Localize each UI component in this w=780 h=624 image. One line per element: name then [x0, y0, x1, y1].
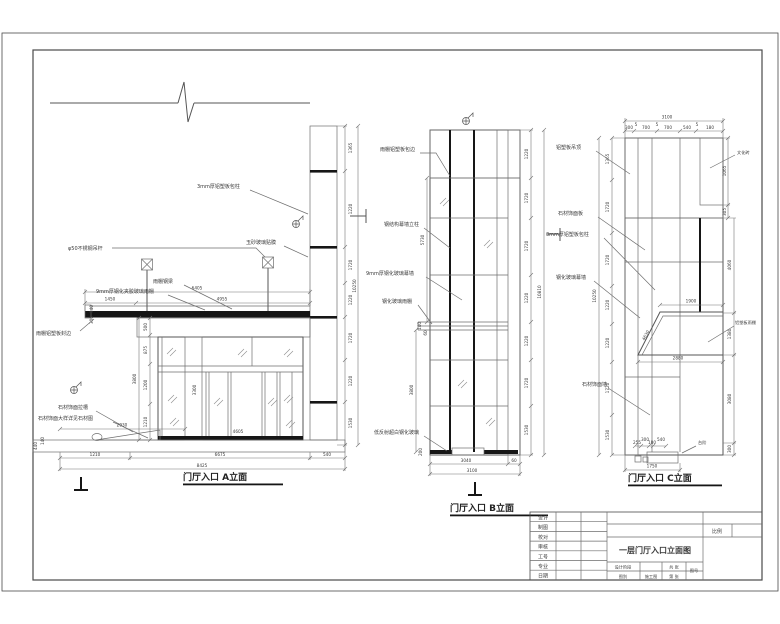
dim-col-6: 1220 — [348, 375, 353, 386]
tb-drawing-title: 一层门厅入口立面图 — [619, 545, 691, 555]
dim-right-total: 10810 — [537, 285, 542, 299]
tb-stage-value: 施工图 — [645, 573, 658, 580]
tb-row-3: 校对 — [538, 534, 548, 541]
dim-bottom-1: 1210 — [90, 452, 101, 457]
dim-c-seg3: 700 — [642, 125, 650, 130]
dim-bottom-total: 8425 — [197, 463, 208, 468]
label-stone-panel: 石材饰面板 — [558, 210, 583, 217]
dim-c-seg1: 300 — [625, 125, 633, 130]
dim-store-2: 875 — [143, 346, 148, 354]
tb-row-5: 工号 — [538, 554, 548, 560]
dim-below-canopy: 2880 — [673, 356, 684, 361]
dim-canopy-slope: 4630 — [641, 329, 651, 341]
labels-b: 雨棚铝塑板包边 钢结构幕墙立柱 9mm厚钢化玻璃幕墙 钢化玻璃雨棚 低反射超白钢… — [366, 146, 462, 451]
dim-ramp: 2930 — [117, 423, 128, 428]
label-canopy-b: 钢化玻璃雨棚 — [382, 298, 412, 305]
section-marker-a — [74, 477, 88, 490]
dim-bottom-2: 6675 — [215, 452, 226, 457]
dim-mullion: 3300 — [192, 384, 197, 395]
dim-c-seg6: 540 — [683, 125, 691, 130]
stone-column — [310, 126, 337, 440]
dim-top-seg2: 4955 — [217, 297, 228, 302]
title-underline-a — [183, 484, 283, 486]
dim-col-4: 1220 — [348, 294, 353, 305]
dim-left-4: 1220 — [605, 299, 610, 310]
dim-bottom-3: 540 — [323, 452, 331, 457]
level-symbol-a2 — [293, 216, 304, 228]
labels-c: 铝塑板吊顶 石材饰面板 3mm厚铝塑板包柱 钢化玻璃幕墙 石材饰面墙 文化砖 铝… — [546, 144, 756, 453]
label-stone-groove: 石材饰面拉槽 — [58, 404, 88, 411]
section-marker-b — [468, 482, 482, 495]
dim-step-3: 180 — [648, 440, 656, 445]
dim-c-seg2: 5 — [635, 122, 638, 127]
dim-brick-h: 1065 — [722, 165, 727, 176]
tb-row-7: 日期 — [538, 574, 548, 580]
dim-c-seg5: 700 — [664, 125, 672, 130]
dim-bottom-b-total: 3100 — [467, 468, 478, 473]
dim-col-3: 1720 — [348, 259, 353, 270]
label-mullion-b: 钢结构幕墙立柱 — [384, 221, 419, 228]
tb-row-6: 专业 — [538, 563, 548, 570]
cad-drawing-page: 1365 1220 1720 1220 1720 1220 1530 10250… — [0, 0, 780, 624]
dim-chain-left-c: 1365 1720 1720 1220 1220 1720 1530 10250 — [592, 136, 625, 457]
cad-canvas: 1365 1220 1720 1220 1720 1220 1530 10250… — [0, 0, 780, 624]
title-block: 设计 制图 校对 审核 工号 专业 日期 一层门厅入口立面图 比例 设计阶段 图… — [530, 512, 762, 580]
elevation-b: 140 60 5730 3800 200 1220 1720 1720 1220… — [366, 113, 560, 516]
dim-bottom-a: 1210 6675 540 8425 — [58, 452, 347, 471]
dim-base-b: 200 — [418, 448, 423, 456]
tb-row-1: 设计 — [538, 515, 548, 522]
dim-lower-b: 3800 — [409, 384, 414, 395]
dim-base-r: 300 — [727, 445, 732, 453]
level-symbol-a1 — [71, 382, 82, 394]
brick-block — [700, 138, 723, 205]
tb-stage-label: 设计阶段 — [615, 564, 633, 571]
dim-door-w: 4605 — [233, 429, 244, 434]
dim-store-total: 3800 — [132, 373, 137, 384]
title-underline-b — [450, 515, 548, 517]
canopy-c: 4630 1900 2880 — [636, 299, 725, 365]
dim-col-5: 1720 — [348, 332, 353, 343]
dim-chain-store-a: 500 875 1200 1210 3800 — [132, 316, 152, 442]
tb-fig-label: 图号 — [690, 568, 698, 574]
title-elevation-a: 门厅入口 A立面 — [183, 471, 247, 483]
dim-upper-b: 5730 — [420, 234, 425, 245]
dim-store-4: 1210 — [143, 416, 148, 427]
dim-c-bottom-total: 1750 — [647, 464, 658, 469]
label-ceiling: 铝塑板吊顶 — [556, 144, 581, 151]
dim-plinth-1: 440 — [33, 442, 38, 450]
tb-row-4: 审核 — [538, 544, 548, 551]
axis-symbol-b — [463, 113, 474, 125]
dim-top-seg1: 1450 — [105, 297, 116, 302]
dim-canopy-b2: 60 — [423, 330, 428, 336]
dim-store-3: 1200 — [143, 379, 148, 390]
storefront-a: 3300 4605 — [158, 337, 303, 440]
dim-right-1: 1220 — [524, 148, 529, 159]
dim-left-7: 1530 — [605, 429, 610, 440]
tb-sheets-total: 共 张 — [669, 564, 680, 571]
dim-bottom-b: 3040 60 3100 — [428, 455, 522, 476]
label-beam: 雨棚钢梁 — [153, 278, 173, 285]
label-hanger: φ50不锈钢吊杆 — [68, 245, 103, 252]
dim-chain-right-b: 1220 1720 1720 1220 1220 1720 1530 10810 — [520, 128, 546, 457]
dim-right-2: 1720 — [524, 192, 529, 203]
dim-right-c: 1065 305 4060 1380 3080 300 — [722, 136, 736, 457]
label-canopy-c: 铝塑板雨棚 — [735, 319, 756, 326]
label-canopy-glass: 9mm厚钢化夹胶玻璃雨棚 — [96, 288, 154, 295]
dim-chain-column-a: 1365 1220 1720 1220 1720 1220 1530 10250 — [337, 124, 360, 447]
label-stone-wall: 石材饰面墙 — [582, 381, 607, 388]
title-underline-c — [628, 485, 722, 487]
dim-c-seg8: 180 — [706, 125, 714, 130]
dim-col-2: 1220 — [348, 203, 353, 214]
canopy-fascia-band — [137, 318, 310, 337]
dim-lower-r: 3080 — [727, 393, 732, 404]
tb-scale-label: 比例 — [712, 528, 722, 535]
dim-c-seg7: 5 — [696, 122, 699, 127]
title-elevation-c: 门厅入口 C立面 — [628, 472, 692, 484]
dim-right-4: 1220 — [524, 292, 529, 303]
dim-plinth-2: 140 — [40, 437, 45, 445]
title-elevation-b: 门厅入口 B立面 — [450, 502, 514, 514]
dim-left-3: 1720 — [605, 254, 610, 265]
tb-sheet-no: 第 张 — [669, 573, 680, 580]
elevation-a: 1365 1220 1720 1220 1720 1220 1530 10250… — [33, 82, 366, 490]
dim-c-seg4: 5 — [656, 122, 659, 127]
label-column-clad-c: 3mm厚铝塑板包柱 — [546, 231, 589, 238]
dim-bottom-b1: 3040 — [461, 458, 472, 463]
dim-canopy-b1: 140 — [417, 322, 422, 330]
elevation-c: 3100 300 5 700 5 700 540 5 180 4630 1900… — [546, 115, 756, 487]
dim-left-5: 1220 — [605, 337, 610, 348]
dim-canopy-w: 1900 — [686, 299, 697, 304]
label-door-b: 低反射超白钢化玻璃 — [374, 429, 419, 436]
label-stone-detail: 石材饰面大样详见石材图 — [38, 415, 93, 422]
dim-right-6: 1720 — [524, 377, 529, 388]
dim-brick-b: 305 — [722, 208, 727, 216]
label-brick: 文化砖 — [737, 149, 750, 156]
label-step: 台阶 — [698, 439, 707, 446]
label-glass-c: 钢化玻璃幕墙 — [556, 274, 586, 281]
dim-col-7: 1530 — [348, 417, 353, 428]
dim-canopy-t1: 140 — [89, 305, 94, 313]
label-curtain: 9mm厚钢化玻璃幕墙 — [366, 270, 414, 277]
dim-left-total: 10250 — [592, 289, 597, 303]
dim-top-c: 3100 300 5 700 5 700 540 5 180 — [623, 115, 725, 139]
dim-right-7: 1530 — [524, 424, 529, 435]
label-canopy-edge: 雨棚铝塑板封边 — [36, 330, 71, 337]
body-c — [625, 138, 723, 455]
dim-mid-r: 4060 — [727, 259, 732, 270]
dim-right-5: 1220 — [524, 335, 529, 346]
dim-store-1: 500 — [143, 323, 148, 331]
dim-step-4: 540 — [657, 437, 665, 442]
dim-c-top-total: 3100 — [662, 115, 673, 120]
label-column-clad: 3mm厚铝塑板包柱 — [197, 183, 240, 190]
dim-right-3: 1720 — [524, 240, 529, 251]
dim-col-1: 1365 — [348, 142, 353, 153]
label-top-clad: 雨棚铝塑板包边 — [380, 146, 415, 153]
tb-row-2: 制图 — [538, 524, 548, 531]
label-film: 玉砂玻璃贴膜 — [246, 239, 276, 246]
slab-line — [50, 82, 310, 122]
dim-bottom-b2: 60 — [511, 458, 517, 463]
dim-col-total: 10250 — [352, 279, 357, 293]
dim-left-2: 1720 — [605, 201, 610, 212]
labels-a: φ50不锈钢吊杆 3mm厚铝塑板包柱 玉砂玻璃贴膜 雨棚钢梁 9mm厚钢化夹胶玻… — [36, 183, 308, 438]
tb-type-label: 图别 — [619, 573, 627, 580]
